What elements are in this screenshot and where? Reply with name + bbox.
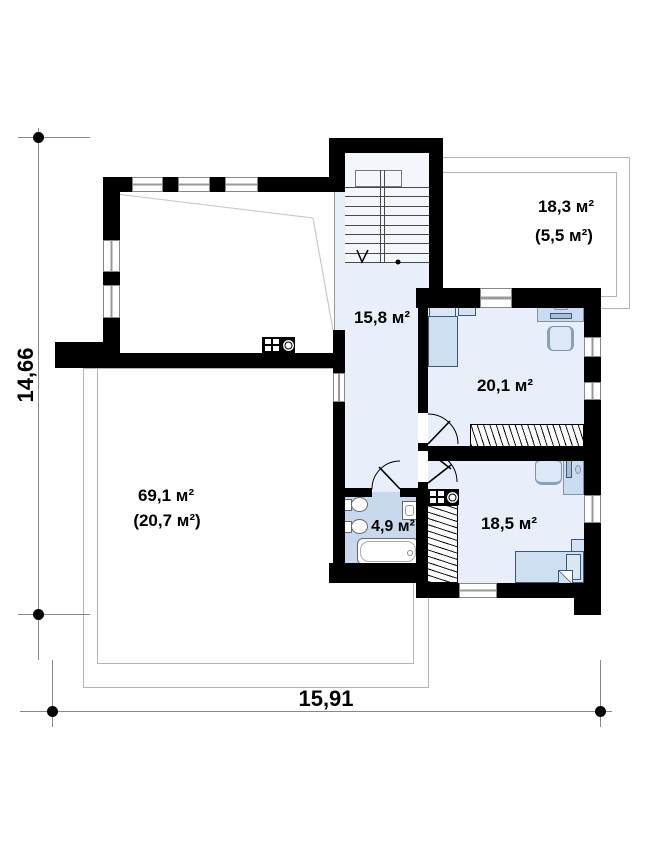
wall [333, 402, 345, 563]
wall [584, 357, 601, 382]
wall [333, 330, 345, 373]
floor-plan-canvas: 18,3 м² (5,5 м²) 15,8 м² 20,1 м² 18,5 м²… [0, 0, 655, 844]
desk-keyboard-icon [550, 313, 572, 319]
stair-tread [345, 215, 429, 216]
stair-tread [345, 243, 429, 244]
wall [329, 138, 443, 153]
room-area-label: 20,1 м² [460, 376, 550, 396]
window [333, 373, 345, 402]
window [225, 177, 258, 192]
window [584, 495, 601, 523]
window [103, 240, 120, 272]
wall [418, 443, 428, 451]
stair-tread [345, 187, 429, 188]
window [584, 337, 601, 357]
cooktop-icon [262, 337, 295, 353]
stair-tread [345, 262, 429, 263]
wall [333, 488, 372, 497]
dimension-dot [47, 706, 58, 717]
wall [584, 523, 601, 583]
wall [103, 318, 120, 353]
wall [429, 153, 443, 288]
wall [416, 583, 459, 598]
room-area-note: (5,5 м²) [514, 226, 614, 246]
door-opening [418, 451, 428, 482]
room-area-label: 69,1 м² [121, 486, 211, 506]
desk-mouse-icon [575, 465, 581, 474]
wall [428, 446, 601, 461]
wall [584, 288, 601, 337]
desk-monitor-icon [566, 460, 572, 478]
stair-tread [345, 196, 429, 197]
window [178, 177, 210, 192]
room-area-note: (20,7 м²) [117, 511, 217, 531]
dimension-tick [18, 614, 90, 615]
wardrobe [470, 424, 584, 447]
wardrobe [427, 505, 458, 583]
wall [103, 272, 120, 285]
window [459, 583, 497, 598]
bathtub-drain [407, 550, 413, 556]
stair-tread [345, 253, 429, 254]
dimension-label-vertical: 14,66 [13, 325, 39, 425]
wall [163, 177, 178, 192]
room-area-label: 4,9 м² [358, 518, 428, 536]
dimension-dot [33, 609, 44, 620]
wall [416, 288, 480, 308]
stair-tread [345, 206, 429, 207]
bed [428, 316, 458, 367]
stair-tread [345, 234, 429, 235]
window [103, 285, 120, 318]
cooktop-icon [428, 489, 459, 505]
wall [329, 563, 428, 583]
wall [103, 353, 345, 368]
stair-landing [355, 170, 402, 187]
wall [210, 177, 225, 192]
stair-tread [345, 225, 429, 226]
stair-stringer [384, 170, 385, 262]
sink-basin [405, 505, 414, 516]
dimension-dot [33, 132, 44, 143]
desk-chair [535, 458, 562, 485]
window [132, 177, 163, 192]
dimension-dot [595, 706, 606, 717]
wall [400, 488, 428, 497]
room-area-label: 15,8 м² [337, 308, 427, 328]
wall [55, 342, 103, 368]
desk-chair [547, 326, 574, 351]
wall [329, 153, 345, 192]
wall [574, 598, 601, 615]
window [584, 382, 601, 400]
dimension-tick [18, 137, 90, 138]
stair-open-edge [334, 192, 335, 332]
stair-stringer [380, 170, 381, 262]
door-opening [418, 413, 428, 443]
wall [103, 177, 120, 240]
wall [497, 583, 601, 598]
toilet-bowl [351, 497, 368, 512]
window [480, 288, 512, 308]
room-area-label: 18,5 м² [464, 514, 554, 534]
wall [584, 400, 601, 495]
room-area-label: 18,3 м² [516, 197, 616, 217]
dimension-label-horizontal: 15,91 [286, 686, 366, 712]
